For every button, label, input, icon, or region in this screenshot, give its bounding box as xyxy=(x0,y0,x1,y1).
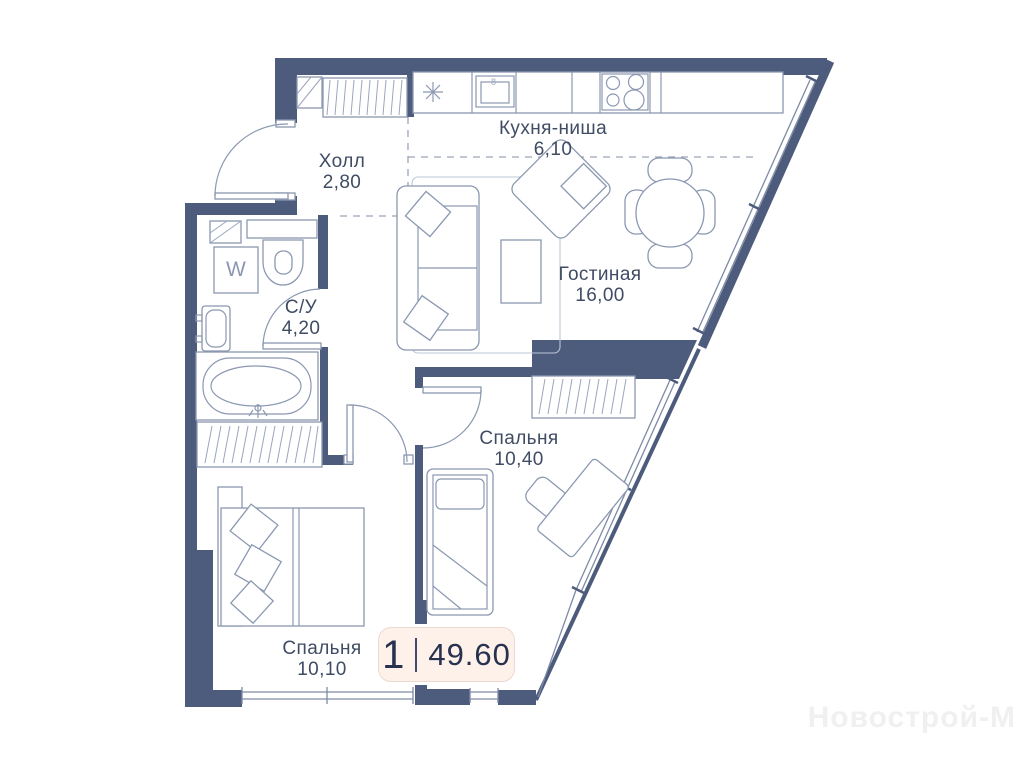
basin-icon xyxy=(196,306,230,351)
hall-closet xyxy=(323,78,407,117)
room-label-bedroom1: Спальня 10,10 xyxy=(282,638,361,680)
desk-chair-icon xyxy=(523,458,630,558)
room-name: Спальня xyxy=(479,428,558,449)
room-area: 2,80 xyxy=(319,172,365,193)
room-label-bathroom: С/У 4,20 xyxy=(282,297,321,339)
oven-label: 8 xyxy=(491,77,496,87)
room-name: Холл xyxy=(319,151,365,172)
entrance-door-arc xyxy=(215,124,288,196)
entrance-door-leaf xyxy=(215,193,288,199)
room-area: 4,20 xyxy=(282,318,321,339)
badge-total-area: 49.60 xyxy=(428,639,511,670)
double-bed-icon xyxy=(218,487,364,626)
room-area: 16,00 xyxy=(559,285,642,306)
bathroom-door-leaf xyxy=(263,343,321,349)
badge-divider xyxy=(415,638,417,672)
room-area: 6,10 xyxy=(499,139,607,160)
room-name: Гостиная xyxy=(559,264,642,285)
dining-set-icon xyxy=(625,158,715,268)
wardrobe-bedroom2 xyxy=(532,376,635,418)
room-label-hall: Холл 2,80 xyxy=(319,151,365,193)
room-label-kitchen: Кухня-ниша 6,10 xyxy=(499,118,607,160)
single-bed-icon xyxy=(427,469,493,615)
room-name: Кухня-ниша xyxy=(499,118,607,139)
watermark: Новострой-М xyxy=(808,701,1016,735)
apartment-badge: 1 49.60 xyxy=(378,627,515,682)
sink-icon xyxy=(423,82,443,102)
room-name: Спальня xyxy=(282,638,361,659)
room-label-living: Гостиная 16,00 xyxy=(559,264,642,306)
wardrobe-bedroom1 xyxy=(197,422,322,467)
shaft xyxy=(297,77,322,108)
kitchen-counter xyxy=(413,72,783,113)
room-label-bedroom2: Спальня 10,40 xyxy=(479,428,558,470)
bathtub-icon xyxy=(196,352,318,420)
bedroom1-door-leaf xyxy=(347,405,353,462)
room-area: 10,40 xyxy=(479,449,558,470)
room-area: 10,10 xyxy=(282,659,361,680)
coffee-table-icon xyxy=(501,240,541,303)
bedroom1-door-arc xyxy=(350,405,407,462)
bedroom2-door-leaf xyxy=(423,387,481,393)
floor-plan: Кухня-ниша 6,10 Холл 2,80 С/У 4,20 Гости… xyxy=(0,0,1024,768)
badge-rooms-count: 1 xyxy=(382,635,404,675)
bedroom2-door-arc xyxy=(423,390,481,448)
sofa-icon xyxy=(397,186,479,350)
washer-label: W xyxy=(226,258,246,282)
room-name: С/У xyxy=(282,297,321,318)
bathroom-shaft xyxy=(210,221,241,243)
